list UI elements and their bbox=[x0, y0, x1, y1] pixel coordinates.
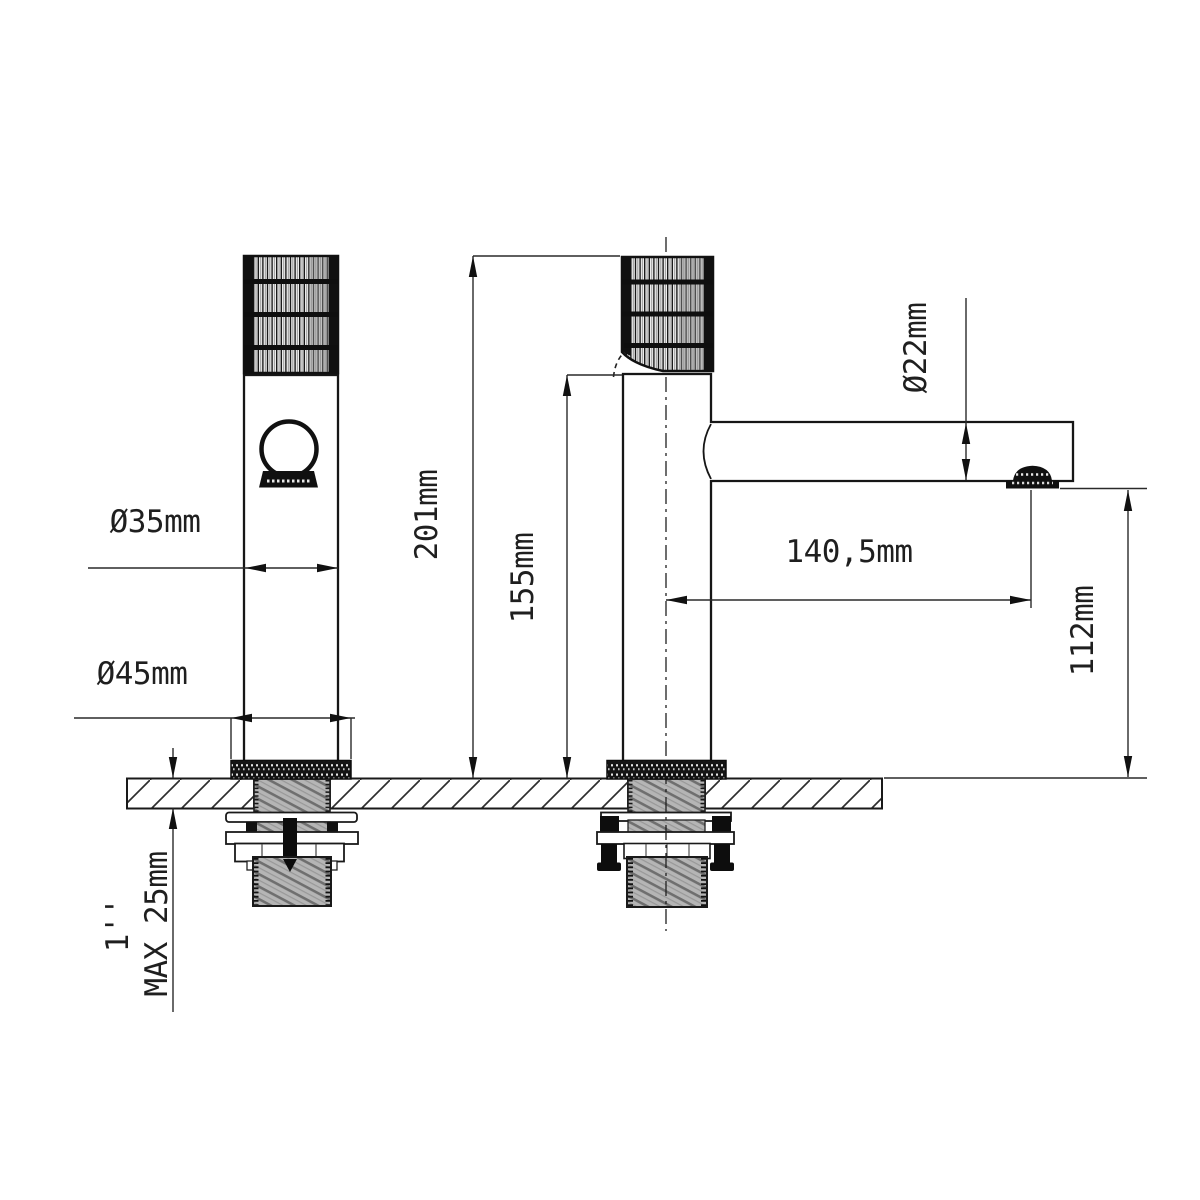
dimensions: Ø35mm Ø45mm 201mm 155mm bbox=[74, 256, 1147, 1012]
arrowhead bbox=[330, 714, 351, 722]
handle-side bbox=[614, 257, 714, 377]
spout bbox=[704, 422, 1074, 489]
countertop-right-segment bbox=[705, 779, 882, 809]
dim-outlet-height: 112mm bbox=[884, 489, 1147, 779]
arrowhead bbox=[231, 714, 252, 722]
arrowhead bbox=[1124, 490, 1132, 511]
dim-total-height: 201mm bbox=[409, 256, 620, 778]
side-view-faucet bbox=[597, 237, 1073, 931]
gasket-left bbox=[246, 822, 257, 833]
label-outlet-height: 112mm bbox=[1065, 586, 1101, 677]
inlet-pipe bbox=[627, 857, 707, 907]
countertop-left-segment bbox=[127, 779, 254, 809]
arrowhead bbox=[1010, 596, 1031, 604]
arrowhead bbox=[169, 757, 177, 778]
label-total-height: 201mm bbox=[409, 470, 445, 561]
faucet-dimension-drawing: Ø35mm Ø45mm 201mm 155mm bbox=[0, 0, 1200, 1200]
label-max-deck-thickness: MAX 25mm bbox=[139, 851, 175, 996]
label-spout-diameter: Ø22mm bbox=[898, 303, 934, 394]
arrowhead bbox=[563, 757, 571, 778]
label-base-diameter: Ø45mm bbox=[97, 656, 188, 692]
base-ring-front bbox=[231, 761, 351, 780]
gasket-right bbox=[327, 822, 338, 833]
arrowhead bbox=[469, 757, 477, 778]
fixing-stud bbox=[283, 818, 297, 859]
arrowhead bbox=[563, 375, 571, 396]
dim-body-height: 155mm bbox=[505, 375, 622, 778]
label-connection-thread: 1'' bbox=[100, 898, 136, 953]
dim-spout-reach: 140,5mm bbox=[666, 490, 1031, 608]
fixing-bolt-right bbox=[714, 844, 730, 865]
countertop bbox=[127, 779, 882, 809]
faucet-body-side bbox=[623, 374, 711, 761]
label-body-diameter: Ø35mm bbox=[110, 504, 201, 540]
label-spout-reach: 140,5mm bbox=[785, 534, 912, 570]
logo-medallion bbox=[259, 422, 318, 488]
technical-drawing-page: Ø35mm Ø45mm 201mm 155mm bbox=[0, 0, 1200, 1200]
base-ring-side bbox=[607, 761, 726, 780]
arrowhead bbox=[169, 808, 177, 829]
fixing-bolt-left bbox=[601, 844, 617, 865]
label-body-height: 155mm bbox=[505, 533, 541, 624]
handle-front bbox=[244, 256, 338, 373]
arrowhead bbox=[1124, 756, 1132, 777]
countertop-middle-segment bbox=[330, 779, 628, 809]
arrowhead bbox=[469, 256, 477, 277]
